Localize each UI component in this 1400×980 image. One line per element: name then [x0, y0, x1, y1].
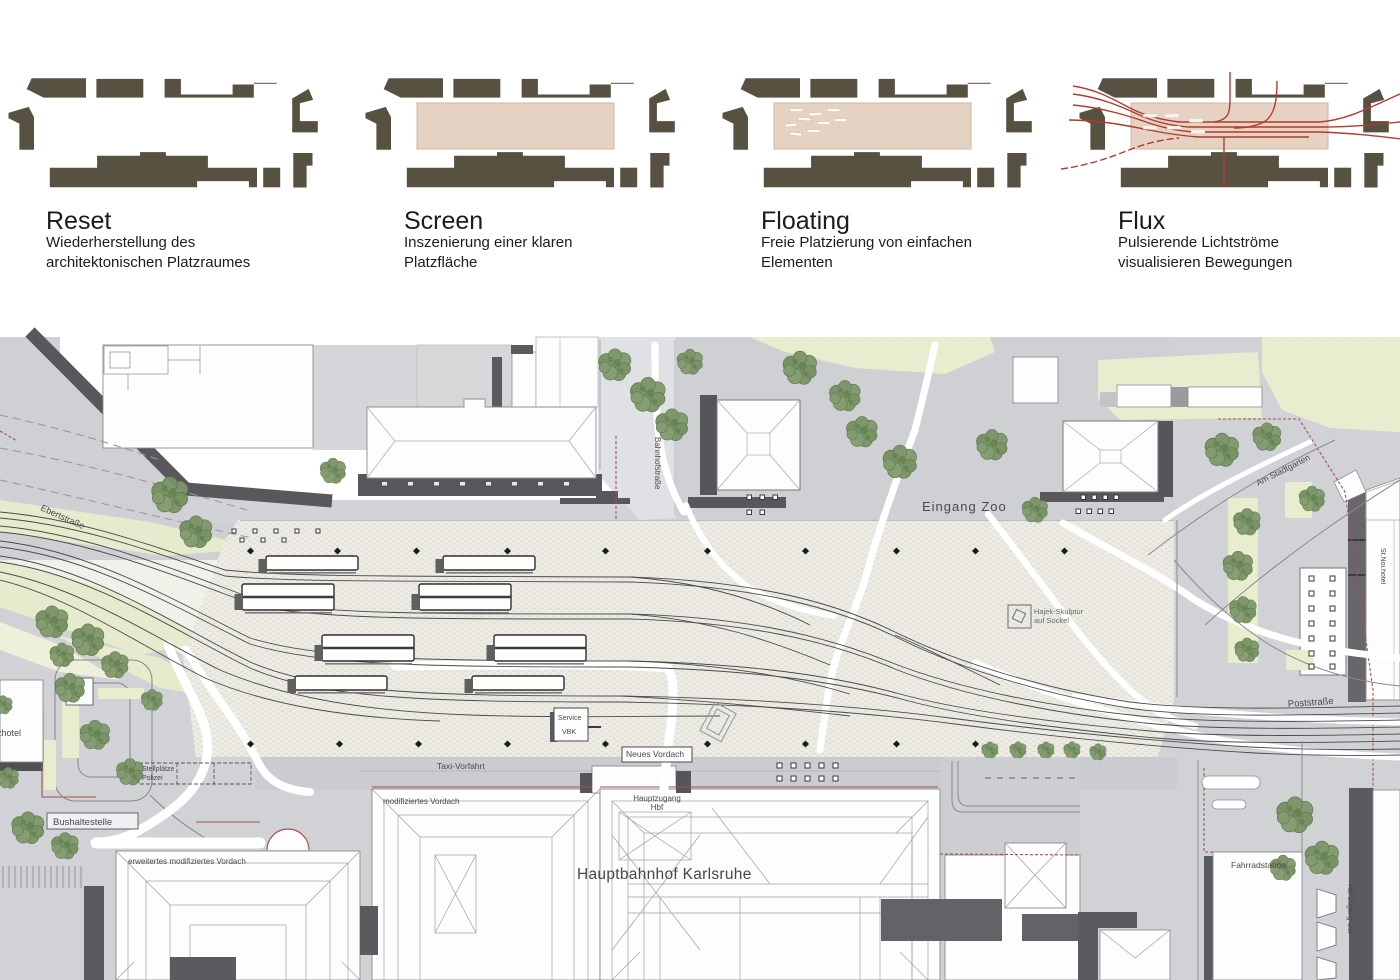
- svg-text:Reset: Reset: [46, 207, 111, 235]
- svg-text:nzhotel: nzhotel: [0, 728, 21, 738]
- svg-text:Pulsierende Lichtströme: Pulsierende Lichtströme: [1118, 234, 1279, 251]
- svg-text:Bahnhofstraße: Bahnhofstraße: [653, 437, 662, 490]
- svg-text:Hauptbahnhof Karlsruhe: Hauptbahnhof Karlsruhe: [577, 866, 752, 883]
- svg-text:Wiederherstellung des: Wiederherstellung des: [46, 234, 195, 251]
- svg-text:Floating: Floating: [761, 207, 850, 235]
- svg-text:architektonischen Platzraumes: architektonischen Platzraumes: [46, 254, 250, 271]
- svg-text:auf Sockel: auf Sockel: [1034, 616, 1069, 625]
- svg-text:Hajek-Skulptur: Hajek-Skulptur: [1034, 607, 1084, 616]
- svg-text:Taxi-Vorfahrt: Taxi-Vorfahrt: [437, 761, 485, 771]
- svg-text:Polizei: Polizei: [142, 775, 163, 782]
- svg-text:Screen: Screen: [404, 207, 483, 235]
- svg-text:Fahrradstation: Fahrradstation: [1231, 860, 1286, 870]
- svg-text:Inszenierung einer klaren: Inszenierung einer klaren: [404, 234, 572, 251]
- svg-text:St.Noi.hotel: St.Noi.hotel: [1379, 548, 1386, 585]
- svg-text:Hbf: Hbf: [651, 803, 664, 812]
- svg-text:Neues Vordach: Neues Vordach: [626, 749, 684, 759]
- svg-text:Service: Service: [558, 715, 581, 722]
- svg-text:Hauptzugang: Hauptzugang: [633, 794, 681, 803]
- svg-text:Eingang Zoo: Eingang Zoo: [922, 499, 1007, 514]
- svg-text:VBK: VBK: [562, 729, 576, 736]
- svg-text:Elementen: Elementen: [761, 254, 833, 271]
- svg-text:Platzfläche: Platzfläche: [404, 254, 477, 271]
- svg-text:Flux: Flux: [1118, 207, 1166, 235]
- svg-text:visualisieren Bewegungen: visualisieren Bewegungen: [1118, 254, 1292, 271]
- svg-text:Stellplätze: Stellplätze: [142, 766, 174, 773]
- svg-text:Hbf Zugang Ost: Hbf Zugang Ost: [1346, 884, 1353, 933]
- svg-text:modifiziertes Vordach: modifiziertes Vordach: [383, 797, 459, 806]
- svg-text:Bushaltestelle: Bushaltestelle: [53, 817, 112, 828]
- svg-text:Freie Platzierung von einfache: Freie Platzierung von einfachen: [761, 234, 972, 251]
- svg-text:erweitertes modifiziertes Vord: erweitertes modifiziertes Vordach: [128, 857, 246, 866]
